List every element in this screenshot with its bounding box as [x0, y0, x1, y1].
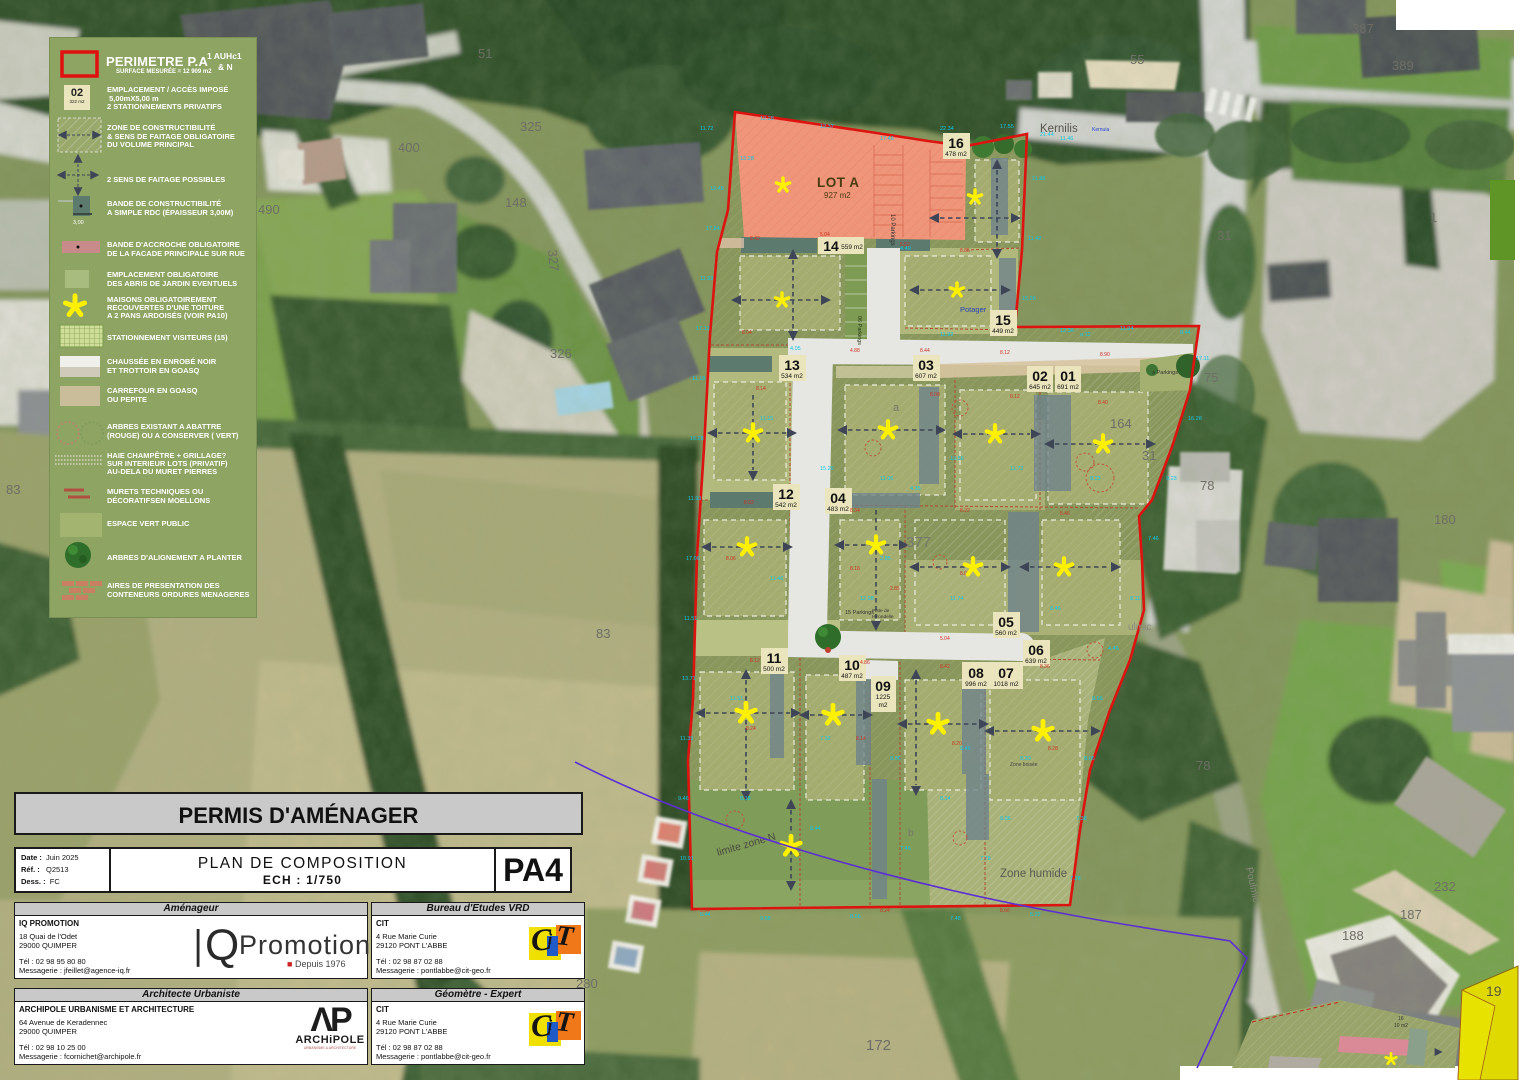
svg-text:31: 31 [1217, 228, 1231, 243]
svg-text:7.48: 7.48 [950, 916, 961, 922]
svg-text:a: a [893, 402, 900, 414]
svg-text:691 m2: 691 m2 [1057, 384, 1079, 391]
svg-text:8.12: 8.12 [1000, 350, 1010, 356]
svg-text:8.18: 8.18 [740, 796, 751, 802]
svg-text:11.92: 11.92 [940, 332, 953, 338]
svg-text:8.24: 8.24 [880, 908, 890, 914]
svg-text:09: 09 [875, 678, 891, 694]
svg-text:8.11: 8.11 [1130, 596, 1140, 602]
svg-text:19: 19 [1486, 983, 1502, 999]
svg-text:10 Parkings: 10 Parkings [889, 214, 895, 246]
svg-text:13: 13 [784, 357, 800, 373]
svg-text:12.46: 12.46 [710, 186, 724, 192]
svg-text:11.51: 11.51 [684, 616, 697, 622]
svg-text:996 m2: 996 m2 [965, 681, 987, 688]
svg-text:9.46: 9.46 [678, 796, 689, 802]
svg-text:326: 326 [550, 346, 572, 361]
svg-text:7.32: 7.32 [820, 736, 831, 742]
svg-text:m2: m2 [878, 702, 887, 709]
svg-text:06: 06 [1028, 642, 1044, 658]
svg-text:8.14: 8.14 [756, 386, 766, 392]
svg-text:377: 377 [906, 534, 931, 551]
svg-text:560 m2: 560 m2 [995, 630, 1017, 637]
svg-text:16: 16 [948, 135, 964, 151]
svg-text:4.46: 4.46 [1108, 646, 1119, 652]
svg-text:11.06: 11.06 [880, 476, 893, 482]
svg-text:51: 51 [478, 46, 492, 61]
svg-text:8.46: 8.46 [1050, 606, 1061, 612]
svg-text:11.15: 11.15 [760, 416, 773, 422]
svg-text:Piste de: Piste de [872, 608, 890, 614]
svg-text:12.37: 12.37 [820, 124, 834, 130]
svg-text:83: 83 [596, 626, 610, 641]
svg-text:11.46: 11.46 [770, 576, 783, 582]
svg-text:10 m2: 10 m2 [1394, 1023, 1408, 1029]
svg-text:7.46: 7.46 [1148, 536, 1159, 542]
svg-text:04: 04 [830, 490, 846, 506]
svg-text:2.85: 2.85 [880, 556, 891, 562]
svg-text:16.28: 16.28 [1188, 416, 1202, 422]
svg-text:8.22: 8.22 [960, 508, 970, 514]
svg-text:16: 16 [1398, 1016, 1404, 1022]
svg-text:11.72: 11.72 [700, 126, 713, 132]
svg-text:11.94: 11.94 [1120, 326, 1133, 332]
svg-text:7.28: 7.28 [1070, 876, 1081, 882]
svg-text:389: 389 [1392, 58, 1414, 73]
svg-text:11.74: 11.74 [950, 596, 963, 602]
svg-text:327: 327 [545, 249, 562, 272]
svg-text:17.55: 17.55 [1000, 124, 1014, 130]
svg-text:b: b [908, 828, 914, 839]
svg-text:4.05: 4.05 [790, 346, 801, 352]
svg-text:7.46: 7.46 [900, 846, 911, 852]
svg-text:8.08: 8.08 [930, 392, 940, 398]
svg-text:13.28: 13.28 [740, 156, 754, 162]
svg-text:180: 180 [1434, 512, 1456, 527]
svg-text:11.51: 11.51 [730, 696, 743, 702]
svg-text:11: 11 [767, 650, 782, 666]
svg-text:280: 280 [576, 976, 598, 991]
svg-text:8.30: 8.30 [1020, 756, 1031, 762]
svg-text:8.28: 8.28 [1048, 746, 1058, 752]
svg-text:Kernuia: Kernuia [1092, 127, 1109, 133]
svg-text:15 Parkings: 15 Parkings [845, 610, 874, 616]
svg-text:05: 05 [998, 614, 1014, 630]
svg-text:8.20: 8.20 [952, 741, 962, 747]
svg-text:01: 01 [1060, 368, 1076, 384]
svg-text:5.04: 5.04 [820, 232, 830, 238]
svg-text:15.26: 15.26 [820, 466, 834, 472]
svg-text:148: 148 [505, 195, 527, 210]
svg-text:8.14: 8.14 [940, 796, 951, 802]
svg-text:8.90: 8.90 [1100, 352, 1110, 358]
svg-text:8.06: 8.06 [890, 756, 901, 762]
svg-text:172: 172 [866, 1037, 891, 1054]
svg-text:8.12: 8.12 [750, 658, 760, 664]
svg-text:188: 188 [1342, 928, 1364, 943]
svg-text:5.04: 5.04 [940, 636, 950, 642]
svg-text:11.46: 11.46 [1060, 136, 1073, 142]
svg-text:Hirondelle: Hirondelle [872, 614, 894, 620]
svg-text:8.14: 8.14 [856, 736, 866, 742]
svg-text:8.34: 8.34 [850, 508, 860, 514]
svg-text:11.88: 11.88 [1032, 176, 1045, 182]
svg-text:03: 03 [918, 357, 934, 373]
svg-text:4.88: 4.88 [850, 348, 860, 354]
svg-text:927 m2: 927 m2 [824, 191, 851, 200]
svg-text:75: 75 [1204, 370, 1218, 385]
svg-text:8.56: 8.56 [850, 914, 861, 920]
svg-text:12.08: 12.08 [860, 596, 874, 602]
svg-text:8.42: 8.42 [940, 664, 950, 670]
svg-text:10.91: 10.91 [680, 856, 694, 862]
svg-text:11.93: 11.93 [700, 276, 713, 282]
svg-text:607 m2: 607 m2 [915, 373, 937, 380]
svg-text:14: 14 [823, 238, 839, 254]
svg-text:9.68: 9.68 [760, 916, 771, 922]
svg-text:12.36: 12.36 [1060, 328, 1074, 334]
svg-text:31: 31 [1142, 448, 1156, 463]
svg-text:a Parkings: a Parkings [1152, 370, 1178, 376]
svg-text:8.06: 8.06 [726, 556, 736, 562]
svg-text:487 m2: 487 m2 [841, 673, 863, 680]
svg-text:8.36: 8.36 [1040, 664, 1050, 670]
svg-text:Zone humide: Zone humide [1000, 868, 1067, 880]
svg-text:8.40: 8.40 [1098, 400, 1108, 406]
svg-text:542 m2: 542 m2 [775, 502, 797, 509]
svg-text:13.71: 13.71 [682, 676, 696, 682]
svg-text:9.23: 9.23 [1166, 476, 1177, 482]
svg-text:4.86: 4.86 [860, 660, 870, 666]
svg-text:8.24: 8.24 [746, 726, 756, 732]
svg-text:8.65: 8.65 [960, 248, 970, 254]
svg-text:11.72: 11.72 [1010, 466, 1023, 472]
svg-text:13.56: 13.56 [950, 456, 964, 462]
svg-text:2.85: 2.85 [890, 586, 900, 592]
svg-text:5.22: 5.22 [1030, 912, 1041, 918]
svg-text:8.42: 8.42 [750, 236, 760, 242]
svg-text:1: 1 [1430, 210, 1437, 225]
svg-text:8.02: 8.02 [744, 500, 754, 506]
svg-text:8.44: 8.44 [1180, 330, 1191, 336]
svg-text:4.35: 4.35 [910, 486, 921, 492]
svg-text:22.34: 22.34 [940, 126, 954, 132]
svg-text:1225: 1225 [876, 694, 891, 701]
svg-text:15.26: 15.26 [1022, 296, 1036, 302]
svg-text:17.11: 17.11 [1196, 356, 1209, 362]
svg-text:17.46: 17.46 [880, 136, 894, 142]
svg-text:LOT A: LOT A [817, 175, 860, 190]
svg-text:06 Parkings: 06 Parkings [856, 316, 862, 345]
svg-text:534 m2: 534 m2 [781, 373, 803, 380]
svg-text:08: 08 [968, 665, 984, 681]
svg-text:21.44: 21.44 [1040, 132, 1054, 138]
svg-text:Zone boisée: Zone boisée [1010, 762, 1038, 768]
svg-text:232: 232 [1434, 879, 1456, 894]
svg-text:8.66: 8.66 [1092, 696, 1103, 702]
svg-text:a.12: a.12 [1080, 332, 1091, 338]
svg-text:164: 164 [1110, 416, 1132, 431]
svg-text:12.28: 12.28 [760, 116, 774, 122]
svg-text:187: 187 [1400, 907, 1422, 922]
svg-text:8.06: 8.06 [1084, 756, 1095, 762]
svg-text:17.12: 17.12 [696, 326, 710, 332]
svg-text:8.05: 8.05 [1000, 816, 1011, 822]
svg-text:10: 10 [844, 657, 860, 673]
svg-text:16.28: 16.28 [690, 436, 704, 442]
svg-text:8.44: 8.44 [920, 348, 930, 354]
svg-text:325: 325 [520, 119, 542, 134]
svg-text:12: 12 [778, 486, 794, 502]
svg-text:559 m2: 559 m2 [841, 244, 863, 251]
svg-text:1018 m2: 1018 m2 [993, 681, 1019, 688]
svg-text:8.46: 8.46 [1060, 511, 1070, 517]
svg-text:02: 02 [1032, 368, 1048, 384]
svg-text:8.12: 8.12 [1010, 394, 1020, 400]
svg-text:17.06: 17.06 [686, 556, 700, 562]
svg-text:ulmic: ulmic [1128, 622, 1151, 633]
svg-text:7.78: 7.78 [980, 856, 991, 862]
svg-text:500 m2: 500 m2 [763, 666, 785, 673]
svg-text:78: 78 [1196, 758, 1210, 773]
svg-text:8.04: 8.04 [742, 330, 752, 336]
svg-text:7.38: 7.38 [1076, 816, 1087, 822]
svg-text:8.66: 8.66 [1000, 908, 1010, 914]
svg-text:11.18: 11.18 [692, 376, 705, 382]
svg-text:387: 387 [1352, 21, 1374, 36]
svg-text:9.04: 9.04 [700, 908, 710, 914]
svg-text:645 m2: 645 m2 [1029, 384, 1051, 391]
svg-text:11.93: 11.93 [688, 496, 701, 502]
svg-text:Potager: Potager [960, 305, 987, 314]
svg-text:400: 400 [398, 140, 420, 155]
svg-text:8.18: 8.18 [850, 566, 860, 572]
svg-text:5.52: 5.52 [900, 242, 910, 248]
svg-text:483 m2: 483 m2 [827, 506, 849, 513]
svg-text:490: 490 [258, 202, 280, 217]
svg-text:17.84: 17.84 [706, 226, 720, 232]
svg-text:83: 83 [6, 482, 20, 497]
svg-text:78: 78 [1200, 478, 1214, 493]
svg-text:11.35: 11.35 [680, 736, 693, 742]
svg-text:8.44: 8.44 [810, 826, 821, 832]
svg-text:478 m2: 478 m2 [945, 151, 967, 158]
svg-text:8.23: 8.23 [1090, 476, 1101, 482]
svg-text:55: 55 [1130, 52, 1144, 67]
svg-text:15: 15 [995, 312, 1011, 328]
svg-text:07: 07 [998, 665, 1014, 681]
svg-text:11.42: 11.42 [1028, 236, 1041, 242]
svg-text:449 m2: 449 m2 [992, 328, 1014, 335]
